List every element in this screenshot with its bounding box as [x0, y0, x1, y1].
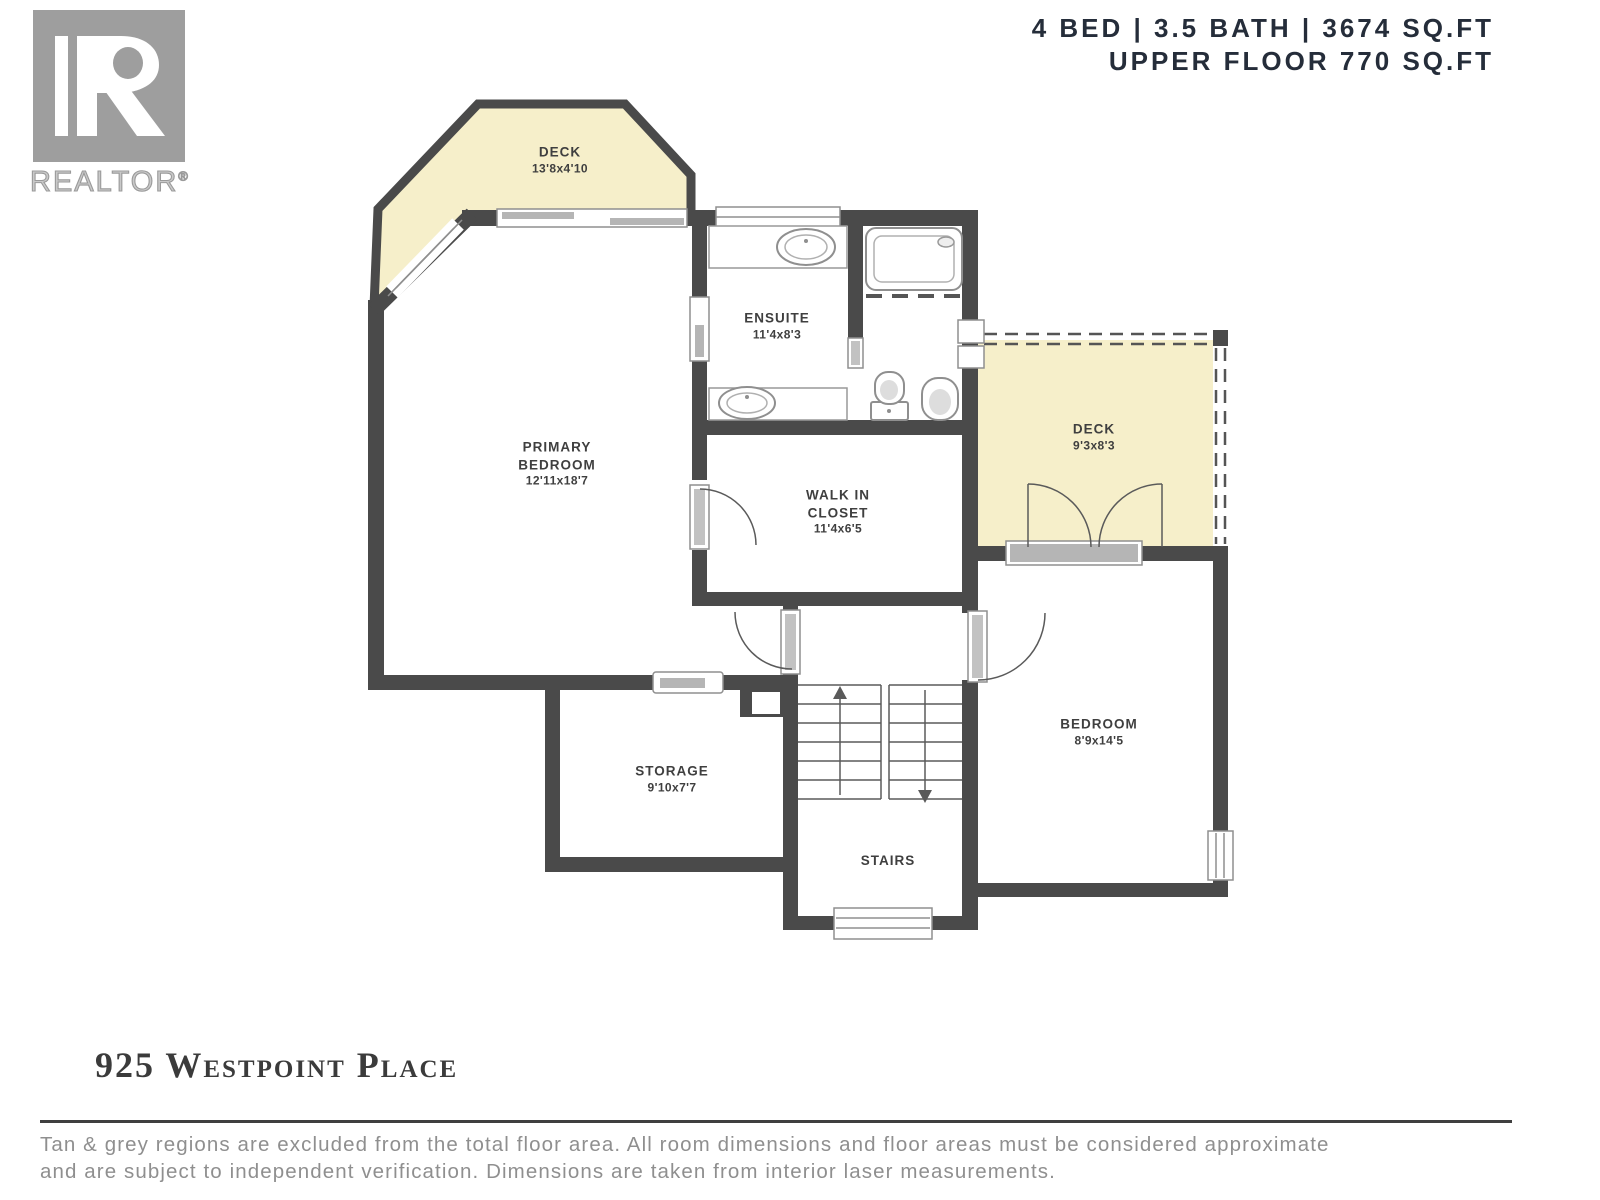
- walk-in-closet-dims: 11'4x6'5: [806, 522, 870, 538]
- deck-right-dims: 9'3x8'3: [1073, 438, 1115, 454]
- stairs-name: STAIRS: [861, 852, 916, 870]
- deck-top-area: [374, 104, 691, 307]
- primary-bedroom-name-2: BEDROOM: [518, 456, 596, 474]
- deck-top-name: DECK: [532, 143, 588, 161]
- disclaimer-line-1: Tan & grey regions are excluded from the…: [40, 1131, 1330, 1158]
- deck-right-label: DECK 9'3x8'3: [1073, 420, 1115, 453]
- walk-in-closet-name-2: CLOSET: [806, 504, 870, 522]
- deck-top-dims: 13'8x4'10: [532, 161, 588, 177]
- windows: [388, 207, 1233, 939]
- footer-divider: [40, 1120, 1512, 1123]
- property-address: 925 Westpoint Place: [95, 1044, 458, 1086]
- primary-bedroom-dims: 12'11x18'7: [518, 474, 596, 490]
- primary-bedroom-name-1: PRIMARY: [518, 439, 596, 457]
- storage-name: STORAGE: [635, 762, 709, 780]
- walk-in-closet-name-1: WALK IN: [806, 487, 870, 505]
- disclaimer-line-2: and are subject to independent verificat…: [40, 1158, 1330, 1185]
- storage-dims: 9'10x7'7: [635, 780, 709, 796]
- ensuite-name: ENSUITE: [744, 309, 810, 327]
- ensuite-label: ENSUITE 11'4x8'3: [744, 309, 810, 342]
- floor-plan-page: REALTOR® 4 BED | 3.5 BATH | 3674 SQ.FT U…: [0, 0, 1600, 1200]
- stairs-treads: [798, 685, 962, 803]
- storage-label: STORAGE 9'10x7'7: [635, 762, 709, 795]
- ensuite-dims: 11'4x8'3: [744, 327, 810, 343]
- bedroom-label: BEDROOM 8'9x14'5: [1060, 715, 1138, 748]
- primary-bedroom-label: PRIMARY BEDROOM 12'11x18'7: [518, 439, 596, 490]
- deck-top-label: DECK 13'8x4'10: [532, 143, 588, 176]
- walk-in-closet-label: WALK IN CLOSET 11'4x6'5: [806, 487, 870, 538]
- stairs-label: STAIRS: [861, 852, 916, 870]
- bedroom-dims: 8'9x14'5: [1060, 733, 1138, 749]
- floor-plan-drawing: [0, 0, 1600, 1200]
- disclaimer: Tan & grey regions are excluded from the…: [40, 1131, 1330, 1186]
- bedroom-name: BEDROOM: [1060, 715, 1138, 733]
- deck-right-name: DECK: [1073, 420, 1115, 438]
